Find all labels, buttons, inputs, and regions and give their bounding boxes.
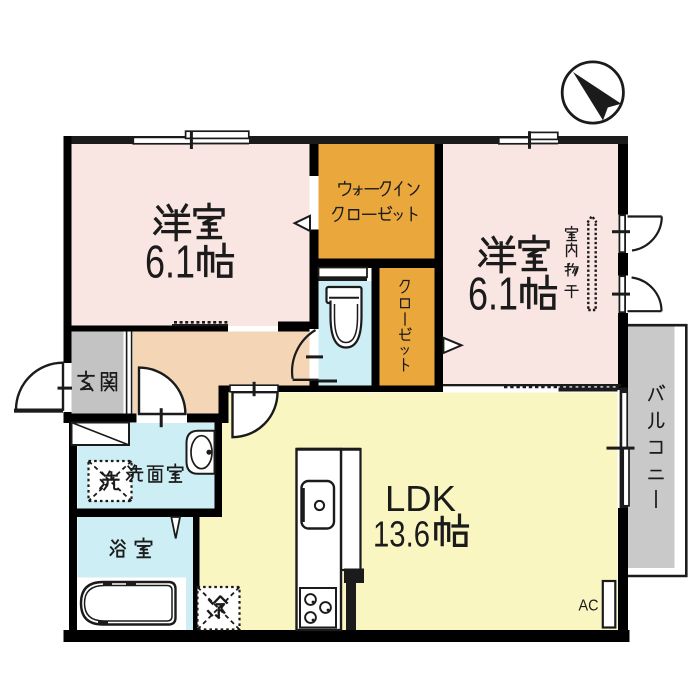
svg-text:AC: AC — [579, 598, 599, 615]
svg-text:13.6: 13.6 — [373, 514, 430, 555]
svg-text:6.1: 6.1 — [468, 268, 518, 320]
svg-text:6.1: 6.1 — [145, 236, 195, 288]
